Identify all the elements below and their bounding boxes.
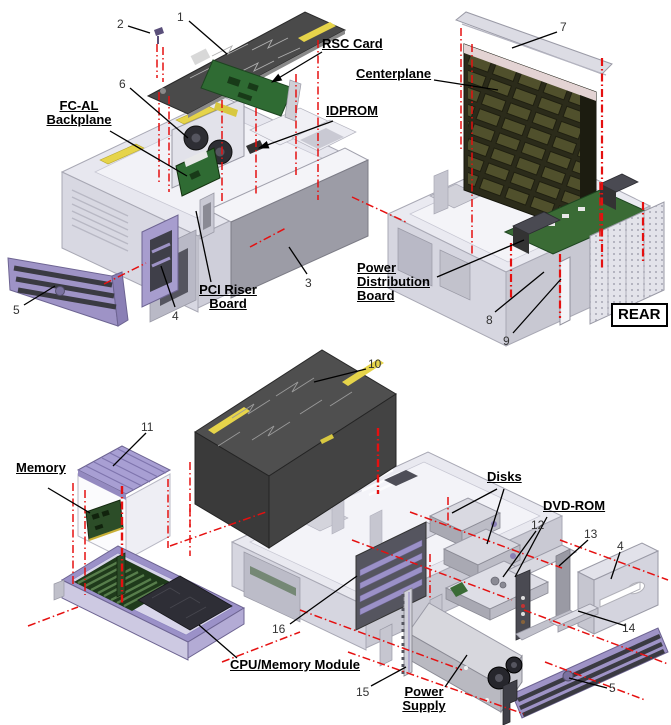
callout-13: 13 [584, 527, 597, 541]
callout-3: 3 [305, 276, 312, 290]
callout-7: 7 [560, 20, 567, 34]
label-dvd-rom: DVD-ROM [543, 499, 605, 513]
callout-8: 8 [486, 313, 493, 327]
callout-1: 1 [177, 10, 184, 24]
callout-11: 11 [141, 420, 153, 434]
callout-15: 15 [356, 685, 369, 699]
label-rsc-card: RSC Card [322, 37, 383, 51]
label-pci-riser-board: PCI Riser Board [194, 283, 262, 311]
label-memory: Memory [16, 461, 66, 475]
bottom-assembly-art [54, 350, 668, 725]
label-fcal-backplane: FC-AL Backplane [44, 99, 114, 127]
callout-14: 14 [622, 621, 635, 635]
callout-4-front: 4 [172, 309, 179, 323]
callout-2: 2 [117, 17, 124, 31]
label-disks: Disks [487, 470, 522, 484]
callout-4-rear: 4 [617, 539, 624, 553]
callout-5-rear: 5 [609, 681, 616, 695]
front-assembly-art [8, 12, 368, 326]
label-power-supply: Power Supply [393, 685, 455, 713]
callout-10: 10 [368, 357, 381, 371]
exploded-diagram: RSC Card Centerplane IDPROM FC-AL Backpl… [0, 0, 671, 725]
callout-9: 9 [503, 334, 510, 348]
callout-12: 12 [531, 518, 544, 532]
label-cpu-memory-module: CPU/Memory Module [230, 658, 360, 672]
callout-5-front: 5 [13, 303, 20, 317]
label-power-distribution-board: Power Distribution Board [357, 261, 430, 303]
label-idprom: IDPROM [326, 104, 378, 118]
rear-badge: REAR [611, 303, 668, 327]
callout-16: 16 [272, 622, 285, 636]
label-centerplane: Centerplane [356, 67, 431, 81]
callout-6: 6 [119, 77, 126, 91]
